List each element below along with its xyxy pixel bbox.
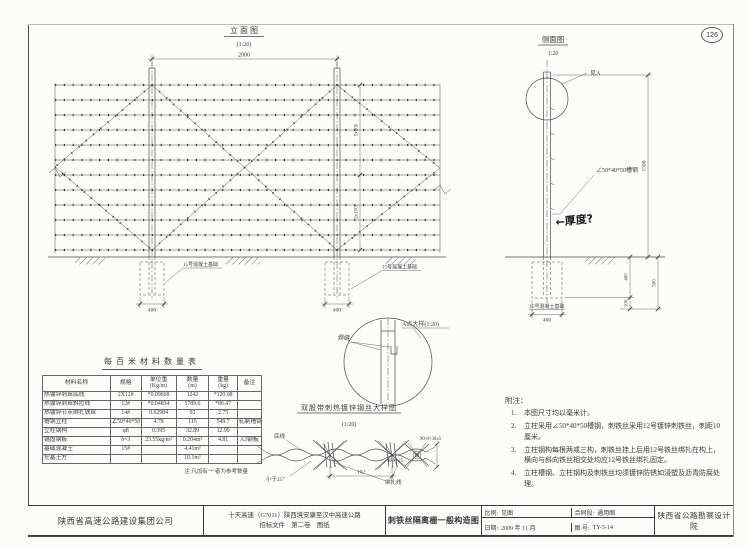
elevation-scale: (1:20) xyxy=(237,41,252,48)
note-item: 1.本图尺寸均以毫米计。 xyxy=(511,408,723,419)
table-cell-unit_weight: 0.02984 xyxy=(141,409,176,418)
svg-text:2000: 2000 xyxy=(238,53,250,59)
svg-text:102: 102 xyxy=(357,470,366,476)
table-cell-weight xyxy=(209,445,237,454)
table-cell-weight: 4.81 xyxy=(209,436,237,445)
svg-text:90-8×25: 90-8×25 xyxy=(387,459,404,464)
barb-cluster xyxy=(375,440,409,470)
col-header-remark: 备注 xyxy=(237,376,261,392)
svg-text:5x200: 5x200 xyxy=(355,123,360,136)
number-cell: 图 号:TY-5-14 xyxy=(572,523,655,532)
elevation-view: 立 面 图 (1:20) 2000 xyxy=(48,25,451,314)
dim-post-spacing: 2000 xyxy=(148,53,341,67)
table-footnote: 注:凡加有"*"者为参考数量 xyxy=(42,464,262,475)
project-info: 十天高速（G7011）陕西境安康至汉中高速公路 招标文件 第二卷 图纸 xyxy=(204,506,386,535)
table-cell-unit_weight: 0.395 xyxy=(141,427,176,436)
svg-text:500: 500 xyxy=(653,279,658,287)
dim-wire-spacing: 5x200 2x150 xyxy=(355,83,363,252)
dim-barb-spacing: 102 xyxy=(326,466,396,479)
table-cell-weight: 549.7 xyxy=(209,418,237,427)
table-cell-name: 槽钢立柱 xyxy=(43,418,111,427)
col-header-weight: 重量(kg) xyxy=(209,376,237,392)
cut-edges xyxy=(49,83,451,253)
fence-post-left xyxy=(149,62,155,300)
table-cell-quantity: 92 xyxy=(176,409,209,418)
table-cell-remark xyxy=(237,427,261,436)
col-header-quantity: 数量(m) xyxy=(176,376,209,392)
side-foundation xyxy=(532,262,562,298)
notes-heading: 附注： xyxy=(505,395,723,406)
post-spec-label: ∠50*40*50槽钢 xyxy=(552,166,638,214)
project-line1: 十天高速（G7011）陕西境安康至汉中高速公路 xyxy=(228,511,360,520)
material-table-title: 每百米材料数量表 xyxy=(102,356,202,370)
table-row: 锚固钢板δ=323.55kg/m²0.204m²4.81A3钢板 xyxy=(43,436,262,445)
table-cell-weight: *86.47 xyxy=(209,400,237,409)
fence-post-right xyxy=(334,62,340,300)
drawing-title: 刺铁丝隔离栅一般构造图 xyxy=(386,506,482,535)
table-cell-name: 锚固钢板 xyxy=(43,436,111,445)
diagonal-wires xyxy=(55,85,440,250)
col-header-unit-weight: 单位重(Kg/m) xyxy=(141,376,176,392)
table-cell-name: 基础混凝土 xyxy=(43,445,111,454)
col-header-spec: 规格 xyxy=(110,376,141,392)
side-foundation-label: 15号混凝土基础 xyxy=(529,303,565,310)
notes: 附注： 1.本图尺寸均以毫米计。2.立柱采用∠50*40*50槽钢，刺铁丝采用1… xyxy=(505,395,723,490)
table-row: 挖基土方10.1m³ xyxy=(43,454,262,463)
foundation-label-left: 15号混凝土基础 xyxy=(165,261,222,283)
table-cell-remark xyxy=(237,409,261,418)
side-view: 侧面图 1:20 见A ∠50 xyxy=(505,34,665,324)
svg-text:100: 100 xyxy=(625,299,630,307)
weld-label: 焊缝 xyxy=(338,334,390,350)
svg-text:400: 400 xyxy=(333,308,342,314)
svg-text:小于25°: 小于25° xyxy=(266,475,285,483)
svg-text:∠50*40*50槽钢: ∠50*40*50槽钢 xyxy=(596,166,638,174)
note-item: 3.立柱钢构每根两或三构，刺铁丝挂上后用12号铁丝绑扎在构上，横向与斜向铁丝相交… xyxy=(511,445,723,467)
table-cell-spec: 15# xyxy=(110,445,141,454)
table-cell-quantity: 115 xyxy=(176,418,209,427)
table-row: 立柱钢构φ80.39532.8912.99 xyxy=(43,427,262,436)
table-row: 热镀锌刺丝斜拉线12#*0.048341789.6*86.47 xyxy=(43,400,262,409)
date-cell: 日期:2009 年 11 月 xyxy=(482,523,572,532)
dim-side-foundation-width: 400 xyxy=(528,300,566,324)
section-cell: 合同段:通用图 xyxy=(572,508,655,518)
note-item: 4.立柱槽钢、立柱钢构及刺铁丝均须镀锌防锈如浸塑及沥青防腐处理。 xyxy=(511,468,723,490)
elevation-title: 立 面 图 xyxy=(230,25,258,35)
table-row: 热镀锌节点绑扎铁丝14#0.02984922.75 xyxy=(43,409,262,418)
table-cell-remark xyxy=(237,445,261,454)
detail-a-title: A点大样(1:20) xyxy=(402,320,439,328)
table-cell-remark xyxy=(237,400,261,409)
table-cell-quantity: 4.41m³ xyxy=(176,445,209,454)
project-line2: 招标文件 第二卷 图纸 xyxy=(259,521,329,530)
table-cell-quantity: 1242 xyxy=(176,391,209,400)
ground-hatch xyxy=(226,258,260,265)
detail-ref-label: 见A xyxy=(590,70,601,77)
table-cell-unit_weight xyxy=(141,445,176,454)
table-cell-weight: 2.75 xyxy=(209,409,237,418)
table-cell-remark xyxy=(237,454,261,463)
table-cell-quantity: 1789.6 xyxy=(176,400,209,409)
handwritten-note: ←厚度? xyxy=(555,211,594,229)
svg-text:400: 400 xyxy=(148,308,157,314)
table-cell-remark xyxy=(237,391,261,400)
table-cell-remark: A3钢板 xyxy=(237,436,261,445)
material-table: 每百米材料数量表 材料名称 规格 单位重(Kg/m) 数量(m) 重量(kg) … xyxy=(42,356,262,475)
table-cell-unit_weight: *0.04834 xyxy=(141,400,176,409)
svg-text:焊缝: 焊缝 xyxy=(338,334,350,342)
dim-foundation-left: 400 xyxy=(136,297,168,314)
table-cell-spec: 12# xyxy=(110,400,141,409)
table-cell-quantity: 32.89 xyxy=(176,427,209,436)
dim-foundation-right: 400 xyxy=(321,297,353,314)
ground-hatch xyxy=(75,258,105,265)
table-cell-name: 热镀锌节点绑扎铁丝 xyxy=(43,409,111,418)
table-cell-name: 挖基土方 xyxy=(43,454,111,463)
table-cell-remark: 轧制槽钢 xyxy=(237,418,261,427)
table-cell-spec: δ=3 xyxy=(110,436,141,445)
table-cell-name: 热镀锌刺丝底线 xyxy=(43,391,111,400)
ground-hatch xyxy=(386,258,416,265)
col-header-name: 材料名称 xyxy=(43,376,111,392)
table-cell-weight xyxy=(209,454,237,463)
wire-detail-title: 双股带刺热镀锌钢丝大样图 xyxy=(301,403,397,412)
svg-text:15号混凝土基础: 15号混凝土基础 xyxy=(382,264,417,271)
side-view-title: 侧面图 xyxy=(542,34,565,44)
table-cell-weight: 12.99 xyxy=(209,427,237,436)
svg-text:400: 400 xyxy=(625,273,630,281)
svg-text:1500: 1500 xyxy=(642,160,648,171)
company-name: 陕西省高速公路建设集团公司 xyxy=(28,506,204,535)
table-cell-spec: ∠50*40*50 xyxy=(110,418,141,427)
barbed-wires xyxy=(55,85,440,250)
table-cell-name: 立柱钢构 xyxy=(43,427,111,436)
design-institute: 陕西省公路勘察设计院 xyxy=(655,506,733,535)
side-view-scale: 1:20 xyxy=(548,51,559,57)
title-block: 陕西省高速公路建设集团公司 十天高速（G7011）陕西境安康至汉中高速公路 招标… xyxy=(28,505,733,536)
table-cell-unit_weight: 4.78 xyxy=(141,418,176,427)
table-cell-unit_weight: 23.55kg/m² xyxy=(141,436,176,445)
svg-text:底线: 底线 xyxy=(274,432,286,440)
scale-cell: 比例:见图 xyxy=(482,508,572,518)
table-cell-spec xyxy=(110,454,141,463)
table-cell-name: 热镀锌刺丝斜拉线 xyxy=(43,400,111,409)
svg-text:15号混凝土基础: 15号混凝土基础 xyxy=(529,303,564,310)
svg-text:90-8×30±5: 90-8×30±5 xyxy=(420,437,442,442)
detail-a-view: A点大样(1:20) 焊缝 xyxy=(338,318,449,406)
table-cell-weight: *120.08 xyxy=(209,391,237,400)
table-cell-unit_weight: *0.09668 xyxy=(141,391,176,400)
table-row: 槽钢立柱∠50*40*504.78115549.7轧制槽钢 xyxy=(43,418,262,427)
table-cell-spec: 2X12# xyxy=(110,391,141,400)
wire-detail-view: 双股带刺热镀锌钢丝大样图 (1:20) xyxy=(257,403,442,486)
svg-text:绑扎线: 绑扎线 xyxy=(385,478,402,486)
drawing-sheet: 126 立 面 图 (1:20) 2000 xyxy=(0,0,747,548)
wire-detail-scale: (1:20) xyxy=(342,421,357,428)
svg-text:15号混凝土基础: 15号混凝土基础 xyxy=(183,261,218,268)
table-cell-spec: φ8 xyxy=(110,427,141,436)
drawing-meta: 比例:见图 合同段:通用图 日期:2009 年 11 月 图 号:TY-5-14 xyxy=(482,506,655,535)
table-row: 基础混凝土15#4.41m³ xyxy=(43,445,262,454)
table-row: 热镀锌刺丝底线2X12#*0.096681242*120.08 xyxy=(43,391,262,400)
table-header-row: 材料名称 规格 单位重(Kg/m) 数量(m) 重量(kg) 备注 xyxy=(43,376,262,392)
table-cell-spec: 14# xyxy=(110,409,141,418)
note-item: 2.立柱采用∠50*40*50槽钢，刺铁丝采用12号镀锌刺铁丝，刺距10厘米。 xyxy=(511,421,723,443)
table-cell-quantity: 0.204m² xyxy=(176,436,209,445)
svg-text:400: 400 xyxy=(543,318,552,324)
ground-hatch xyxy=(585,258,615,265)
foundation-label-right: 15号混凝土基础 xyxy=(351,264,421,290)
table-cell-quantity: 10.1m³ xyxy=(176,454,209,463)
svg-text:2x150: 2x150 xyxy=(355,206,360,219)
table-cell-unit_weight xyxy=(141,454,176,463)
side-post xyxy=(544,60,555,303)
